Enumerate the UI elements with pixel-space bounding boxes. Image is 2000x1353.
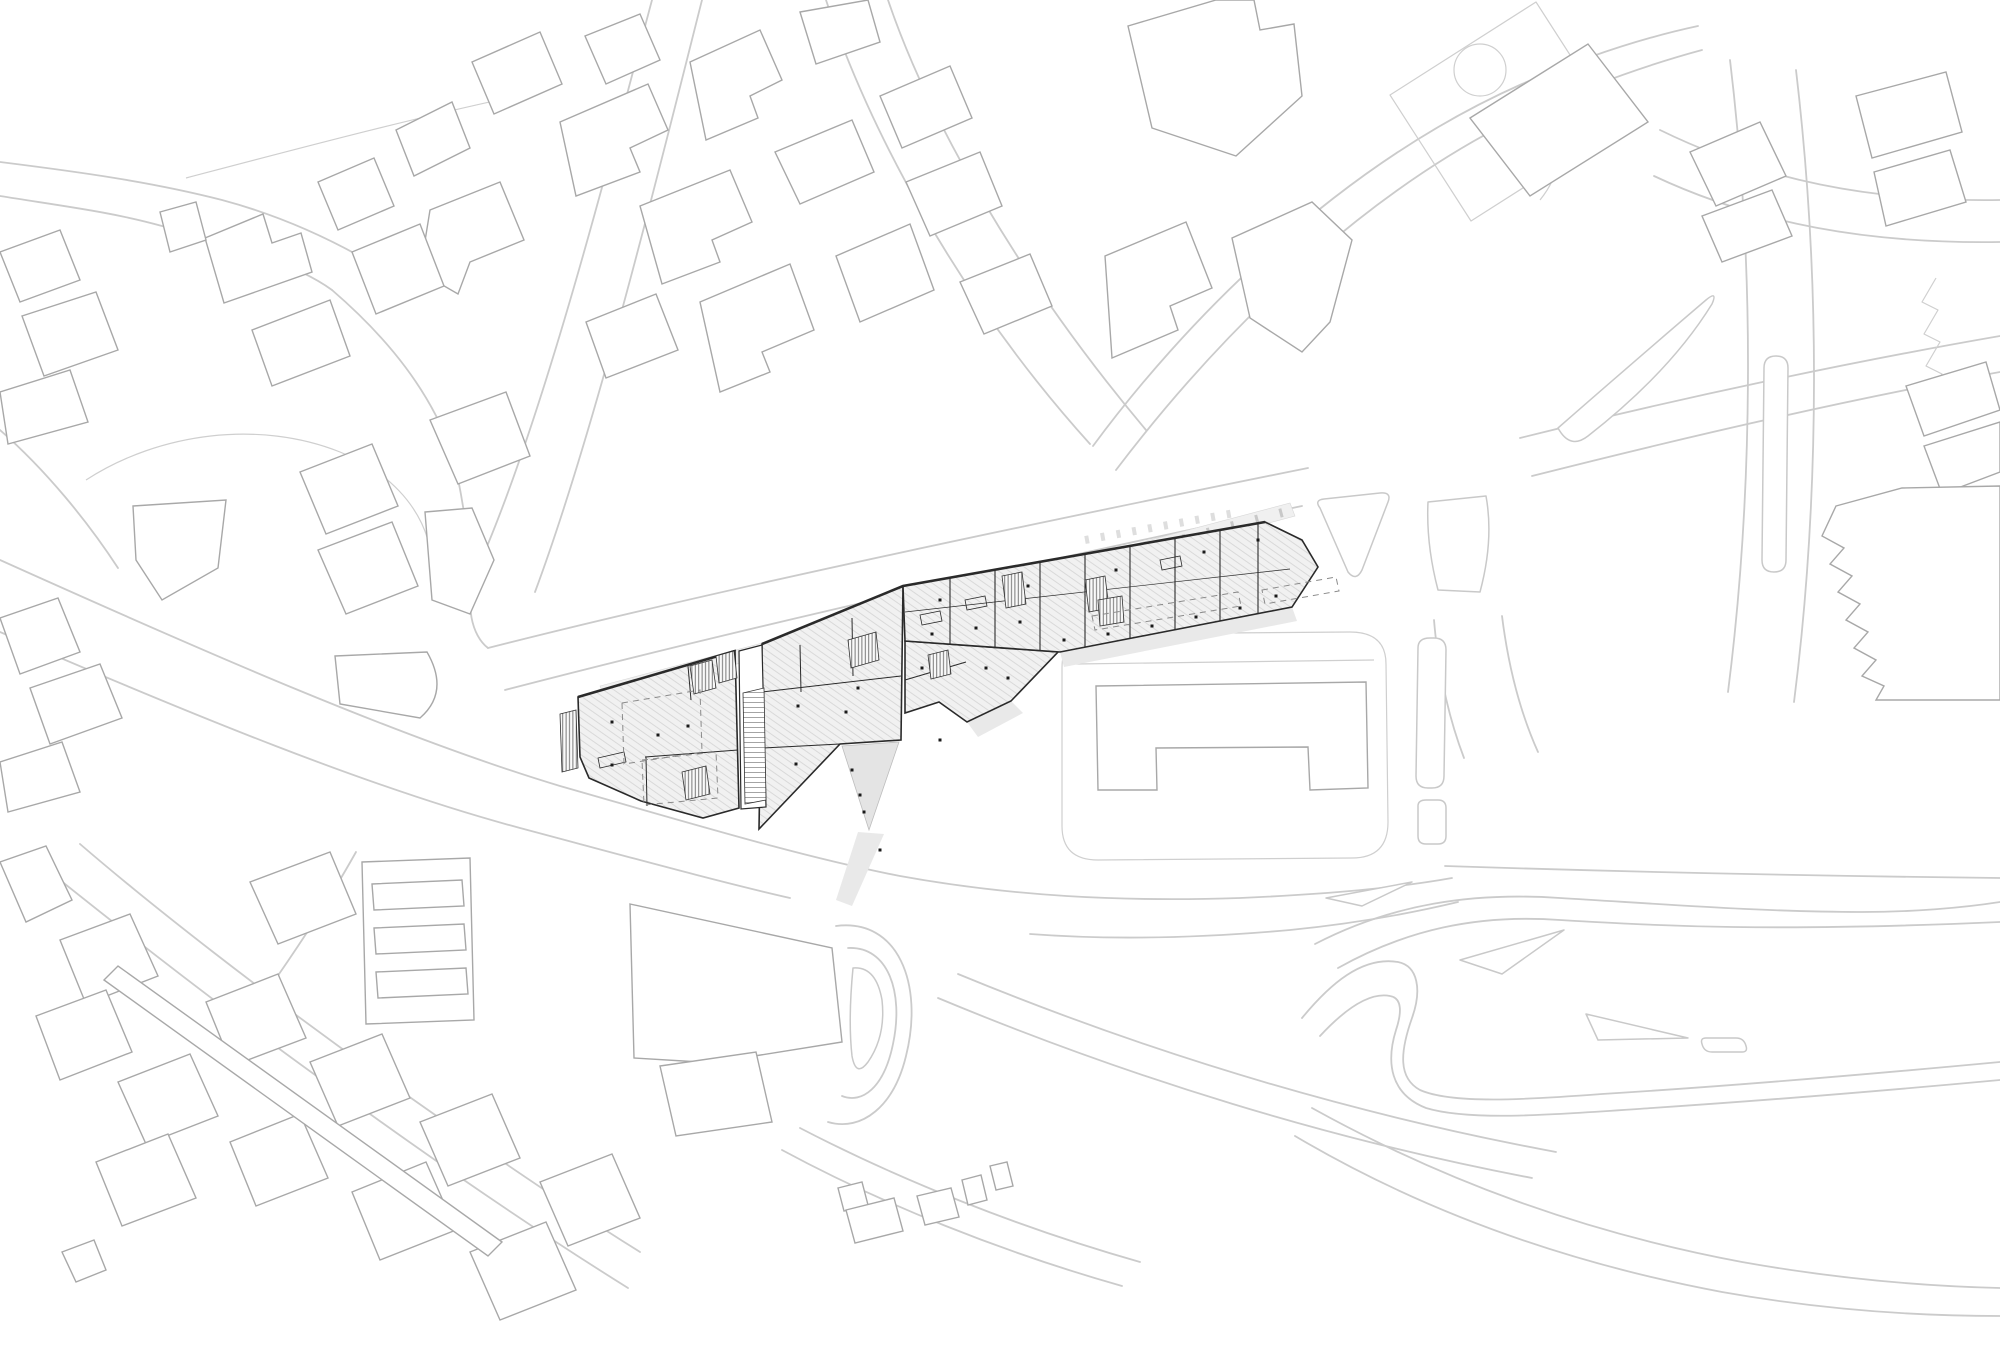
stair-core	[682, 766, 710, 800]
column-dots	[975, 627, 978, 630]
stair-core	[716, 651, 737, 683]
island-triangle-2	[1428, 496, 1489, 592]
median-pill-parcel	[1416, 638, 1446, 788]
column-dots	[939, 739, 942, 742]
median-pill-small	[1418, 800, 1446, 844]
column-dots	[797, 705, 800, 708]
column-dots	[1019, 621, 1022, 624]
column-dots	[1007, 677, 1010, 680]
column-dots	[1203, 551, 1206, 554]
column-dots	[879, 849, 882, 852]
column-dots	[611, 764, 614, 767]
stair-core	[690, 660, 716, 694]
ramp-hatch	[743, 688, 766, 804]
stair-core	[928, 650, 951, 679]
page	[0, 0, 2000, 1353]
column-dots	[1275, 595, 1278, 598]
column-dots	[921, 667, 924, 670]
slab-courtyard	[374, 924, 466, 954]
column-dots	[1195, 616, 1198, 619]
column-dots	[611, 721, 614, 724]
island-pill-horizontal	[1702, 1038, 1747, 1052]
column-dots	[845, 711, 848, 714]
median-pill-vertical	[1762, 356, 1788, 572]
stair-core	[1002, 572, 1026, 608]
stair-entry-west	[560, 710, 578, 772]
column-dots	[1107, 633, 1110, 636]
column-dots	[1027, 585, 1030, 588]
column-dots	[857, 687, 860, 690]
column-dots	[851, 769, 854, 772]
column-dots	[687, 725, 690, 728]
column-dots	[939, 599, 942, 602]
building	[660, 1052, 772, 1136]
stair-core	[1098, 596, 1124, 626]
column-dots	[1115, 569, 1118, 572]
column-dots	[1151, 625, 1154, 628]
column-dots	[795, 763, 798, 766]
column-dots	[1239, 607, 1242, 610]
column-dots	[1257, 539, 1260, 542]
slab-courtyard	[376, 968, 468, 998]
column-dots	[657, 734, 660, 737]
slab-courtyard	[372, 880, 464, 910]
column-dots	[863, 811, 866, 814]
site-plan-svg	[0, 0, 2000, 1353]
column-dots	[985, 667, 988, 670]
column-dots	[931, 633, 934, 636]
column-dots	[1063, 639, 1066, 642]
column-dots	[859, 794, 862, 797]
